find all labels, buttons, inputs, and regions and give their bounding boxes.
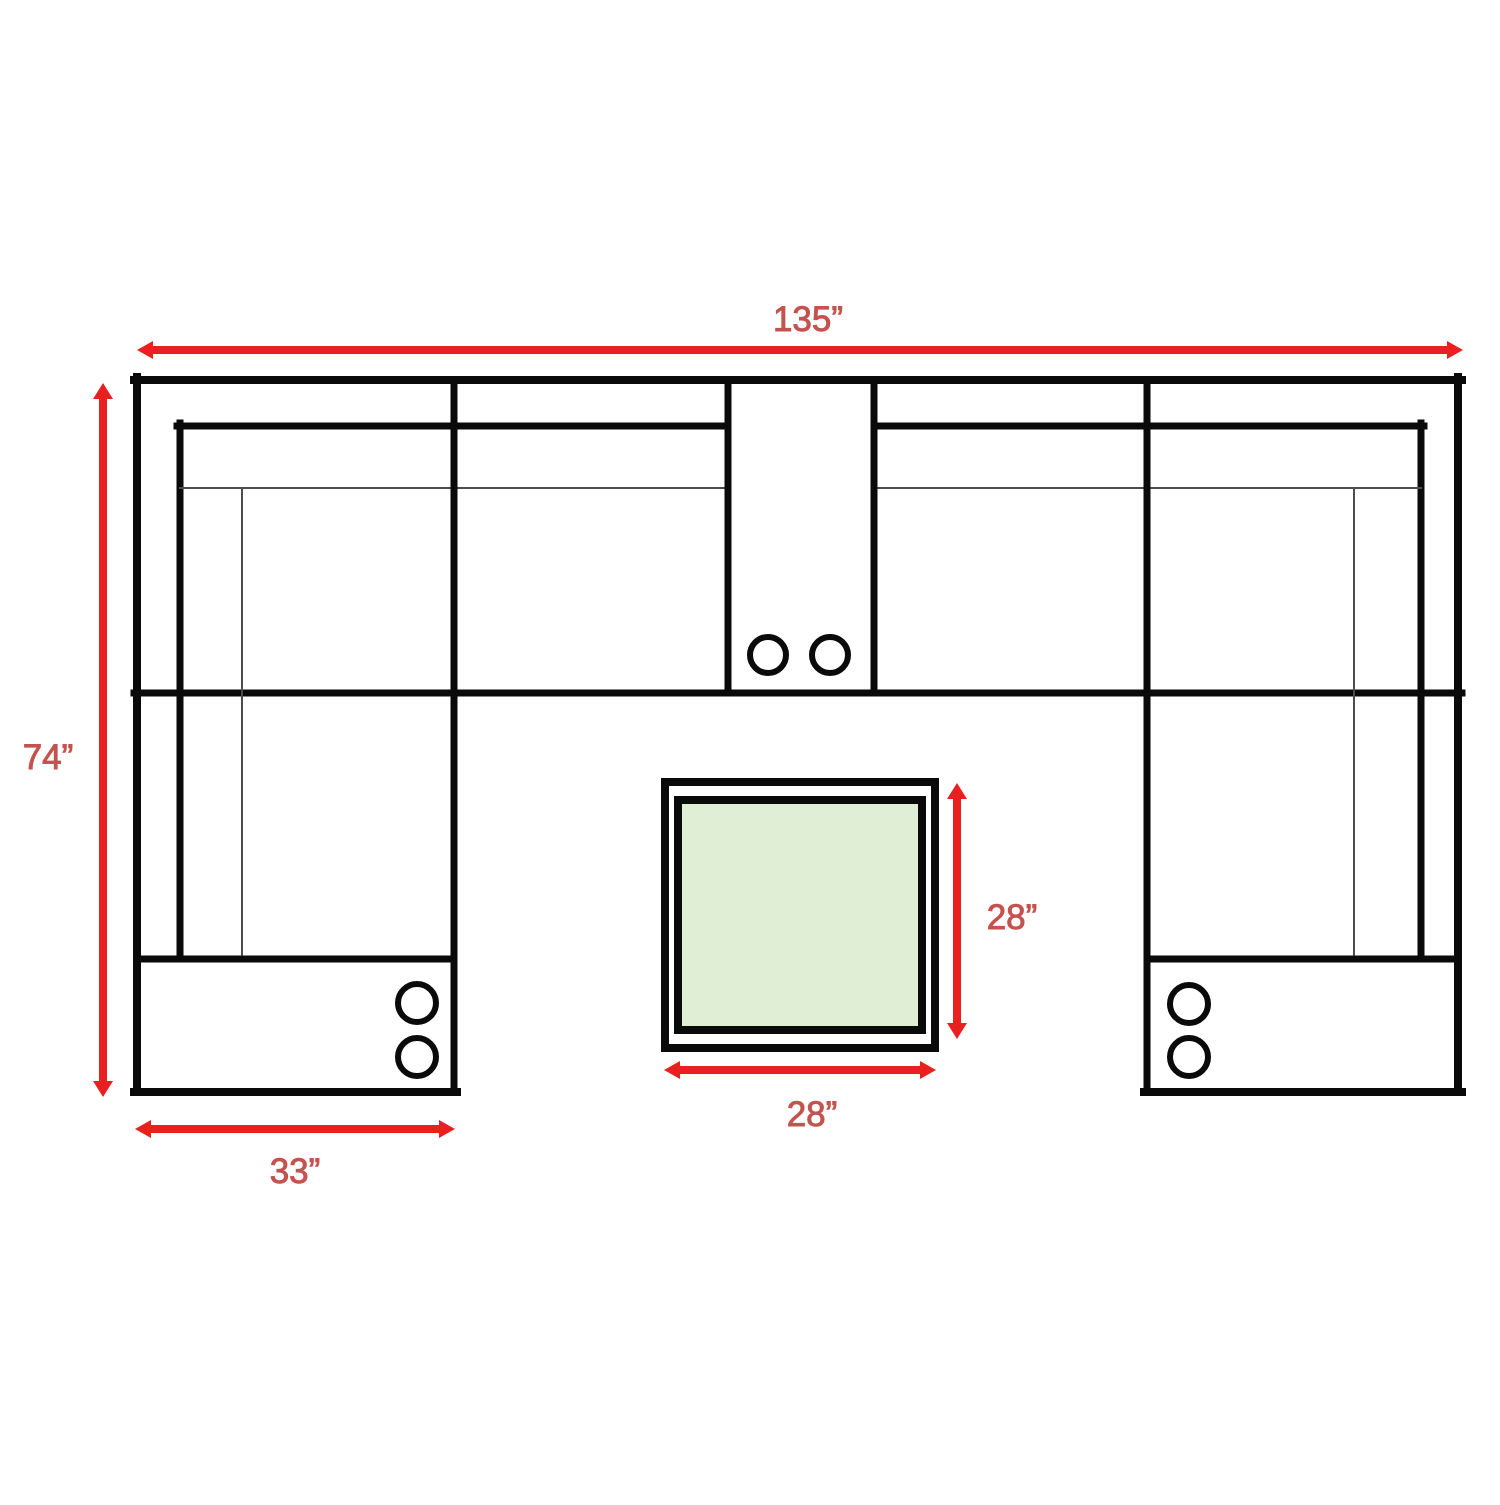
svg-text:135”: 135” (773, 300, 843, 339)
svg-text:33”: 33” (270, 1152, 321, 1191)
svg-text:28”: 28” (987, 898, 1038, 937)
svg-text:28”: 28” (787, 1095, 838, 1134)
svg-text:74”: 74” (23, 738, 74, 777)
